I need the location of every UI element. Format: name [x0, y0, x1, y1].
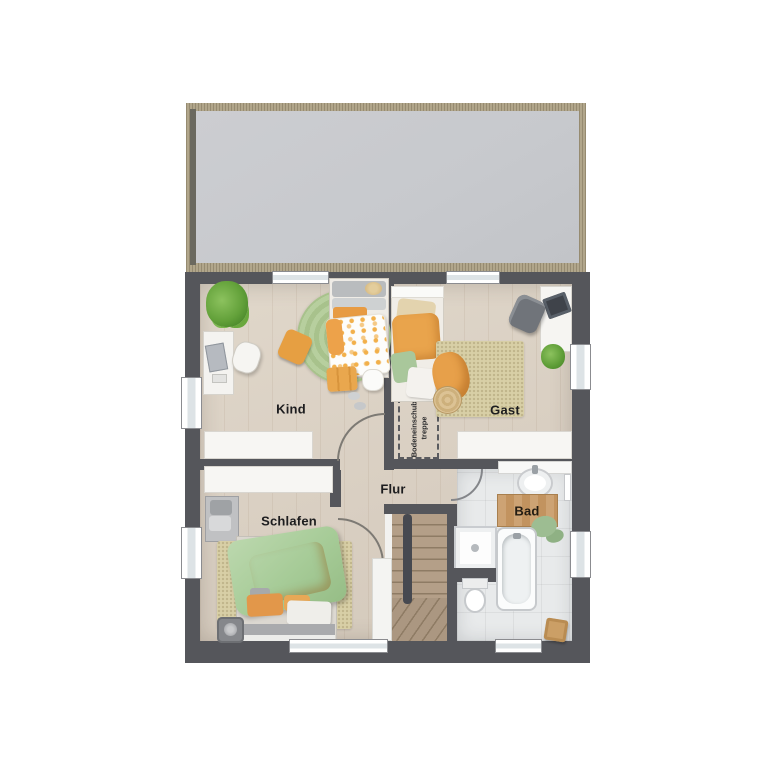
bad-shower-drain — [471, 544, 479, 552]
label-bad: Bad — [514, 504, 539, 519]
window-bottom-schlafen — [289, 639, 388, 653]
schlafen-pillow-white — [287, 600, 332, 626]
kind-bench — [326, 366, 358, 392]
floor-plan: Bodeneinschub- treppe Kind Gast Flur — [0, 0, 775, 775]
window-left-kind — [181, 377, 202, 429]
bad-stool — [543, 617, 568, 642]
schlafen-clothes-pile — [210, 500, 232, 515]
label-schlafen: Schlafen — [261, 514, 317, 529]
bad-towel-rail — [564, 474, 571, 501]
kind-side-table — [362, 369, 384, 391]
bad-toilet — [464, 588, 486, 613]
schlafen-speaker-cone — [224, 623, 237, 636]
label-gast: Gast — [490, 403, 520, 418]
window-right-bad — [570, 531, 591, 578]
window-top-gast — [446, 271, 500, 284]
stair-guard-wall — [372, 558, 392, 641]
schlafen-pillow-orange — [246, 593, 283, 617]
kind-straw-hat — [365, 282, 382, 295]
door-arc-bad — [451, 469, 482, 500]
gast-wardrobe — [457, 431, 572, 459]
bad-bathtub-basin — [502, 534, 531, 604]
door-arcs — [0, 0, 775, 775]
gast-pouf — [433, 386, 462, 414]
stair-railing — [403, 514, 412, 604]
attic-hatch: Bodeneinschub- treppe — [398, 397, 439, 459]
window-right-gast — [570, 344, 591, 390]
window-left-schlafen — [181, 527, 202, 579]
label-kind: Kind — [276, 402, 306, 417]
gast-headboard — [391, 286, 444, 298]
kind-keyboard — [212, 374, 227, 383]
window-top-kind — [272, 271, 329, 284]
door-arc-kind — [338, 414, 385, 461]
schlafen-wardrobe — [204, 466, 333, 493]
window-bottom-bad — [495, 639, 542, 653]
kind-wardrobe — [204, 431, 313, 459]
kind-slippers — [348, 392, 360, 400]
bad-sink-faucet — [532, 465, 538, 474]
label-flur: Flur — [380, 482, 405, 497]
bad-bathtub-faucet — [513, 533, 521, 539]
attic-hatch-label: Bodeneinschub- treppe — [409, 398, 429, 458]
kind-plant — [206, 281, 248, 327]
gast-plant — [541, 344, 565, 369]
stair-treads — [392, 514, 447, 598]
stair-winder-treads — [392, 598, 447, 641]
